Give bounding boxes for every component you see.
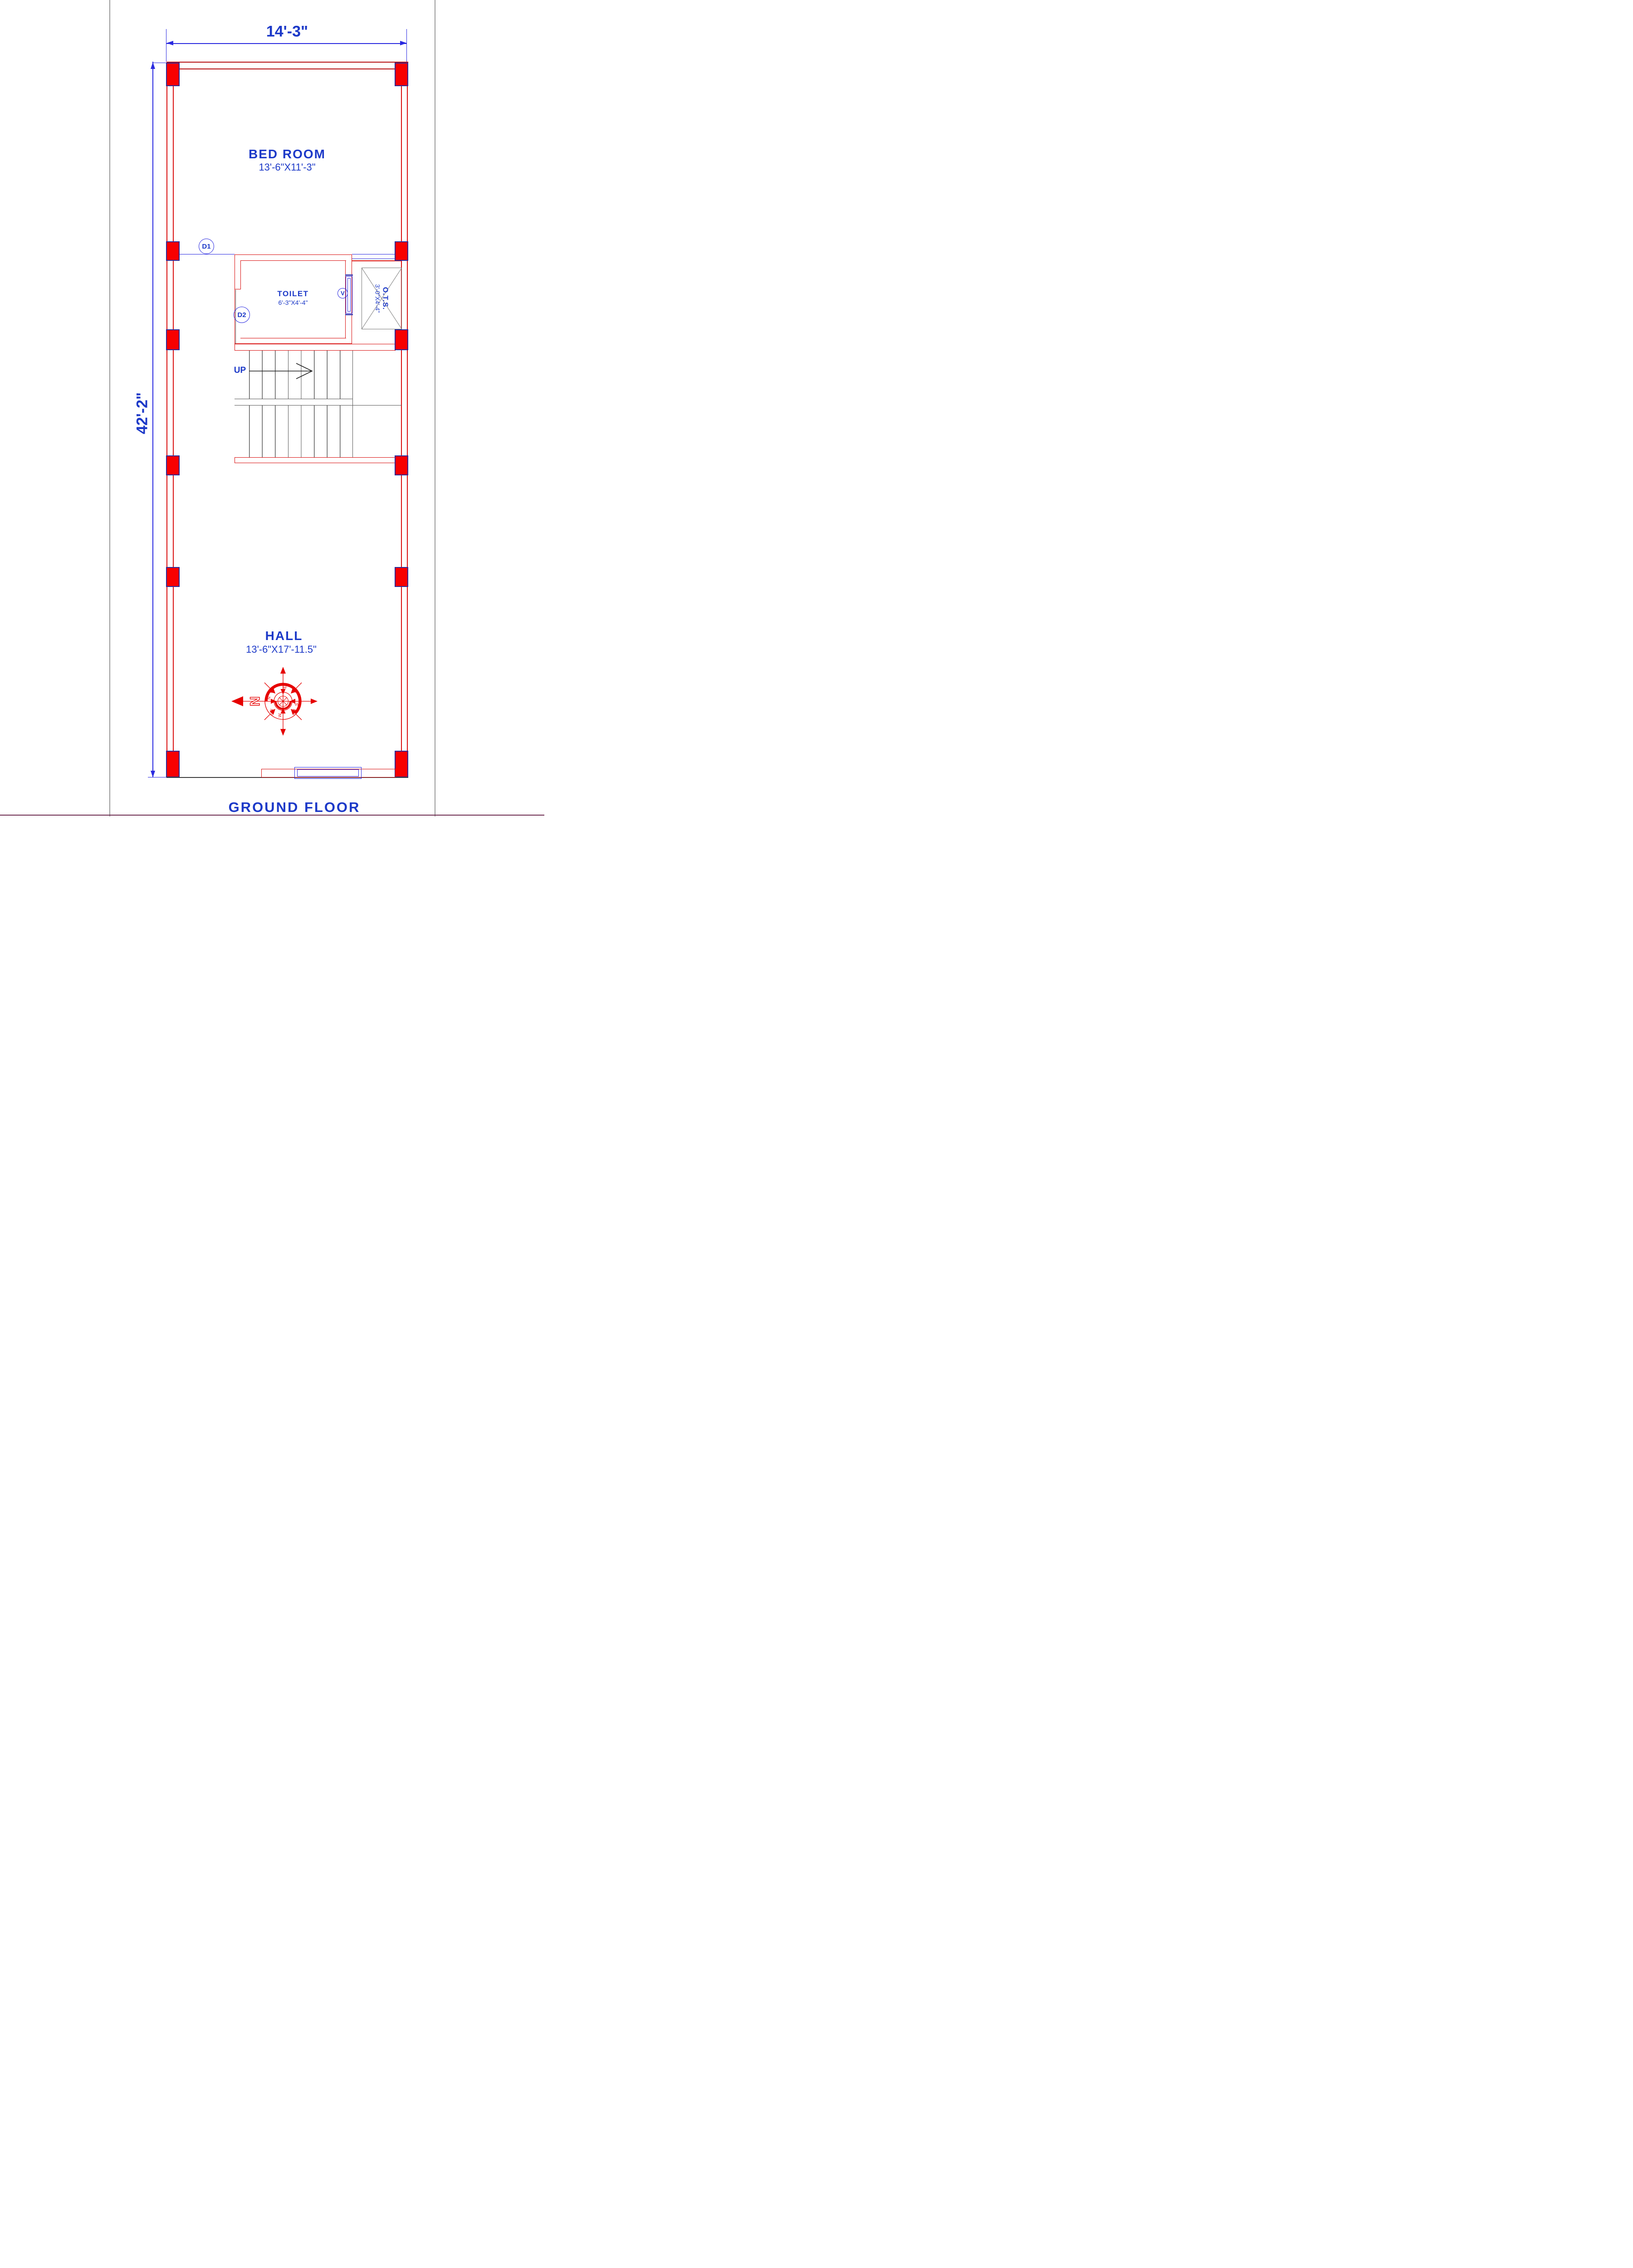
dimension-top-label: 14'-3" [266, 23, 308, 41]
compass-cardinal-e: E [283, 686, 287, 689]
compass-cardinal-ne: NE [269, 688, 274, 693]
toilet-wall-inner-top [240, 260, 346, 261]
door2-tag-label: D2 [237, 311, 246, 319]
stair-up-label: UP [234, 366, 246, 376]
bedroom-size: 13'-6"X11'-3" [259, 161, 315, 173]
compass-cardinal-sw: SW [292, 709, 297, 715]
stair-landing-edge-1 [235, 399, 352, 399]
column [166, 63, 180, 86]
column [395, 63, 408, 86]
floor-title: GROUND FLOOR [229, 799, 361, 816]
stair-up-arrow [247, 361, 315, 381]
door1-head-line [180, 254, 235, 254]
stair-bottom-beam [235, 457, 396, 463]
column [395, 455, 408, 475]
door1-tag: D1 [199, 239, 214, 254]
hall-name: HALL [265, 629, 303, 643]
dim-top-ext-right [406, 29, 407, 62]
column [166, 241, 180, 261]
ventilator-tag: V [337, 288, 348, 298]
ots-room-name: O.T.S. [381, 284, 389, 313]
ventilator-cap-bottom [345, 314, 353, 315]
stair-lower-flight-treads [249, 406, 353, 457]
door2-tag: D2 [234, 307, 250, 323]
wall-right-outer [407, 62, 408, 777]
column [395, 329, 408, 350]
compass-cardinal-nw: NW [269, 709, 274, 715]
wall-right-inner [401, 68, 402, 771]
column [395, 567, 408, 587]
column [166, 329, 180, 350]
dim-left-arrow-down [151, 771, 155, 777]
column [166, 455, 180, 475]
column [395, 241, 408, 261]
compass-north-letter: N [248, 696, 263, 706]
column [166, 751, 180, 777]
wall-top-inner [173, 68, 402, 69]
door1-tag-label: D1 [202, 243, 210, 250]
compass-cardinal-s: S [294, 703, 299, 706]
wall-top-outer [166, 62, 408, 63]
ventilator-tag-label: V [341, 290, 345, 297]
dim-left-arrow-up [151, 62, 155, 69]
compass-cardinal-n: N [267, 697, 271, 700]
dim-top-line [166, 43, 407, 44]
toilet-wall-inner-bottom [240, 338, 346, 338]
toilet-size: 6'-3"X4'-4" [278, 299, 308, 306]
bedroom-name: BED ROOM [249, 147, 326, 161]
stair-side-boundary [352, 351, 353, 457]
floor-plan-sheet: 14'-3" 42'-2" O.T.S. 3'-0"X4'-4" [0, 0, 544, 816]
ots-label-block: O.T.S. 3'-0"X4'-4" [374, 284, 389, 313]
dim-top-ext-left [166, 29, 166, 62]
sheet-border-left [109, 0, 110, 816]
sheet-border-right [435, 0, 435, 816]
wall-left-inner [173, 68, 174, 753]
ventilator-cap-top [345, 274, 353, 276]
wall-left-outer [166, 62, 167, 777]
entrance-sill-inner [297, 769, 359, 777]
ventilator-window-inner [347, 278, 351, 312]
column [395, 751, 408, 777]
dimension-left-label: 42'-2" [134, 392, 152, 434]
dim-left-line [152, 62, 153, 777]
compass-cardinal-se: SE [292, 688, 297, 693]
compass-rose: N [229, 647, 337, 756]
toilet-name: TOILET [277, 289, 308, 298]
stair-top-beam [235, 344, 396, 351]
dim-top-arrow-left [166, 41, 173, 45]
column [166, 567, 180, 587]
compass-cardinal-w: W [278, 713, 282, 717]
dim-top-arrow-right [400, 41, 407, 45]
ots-room-size: 3'-0"X4'-4" [374, 284, 381, 313]
toilet-wall-inner-left [240, 260, 241, 289]
